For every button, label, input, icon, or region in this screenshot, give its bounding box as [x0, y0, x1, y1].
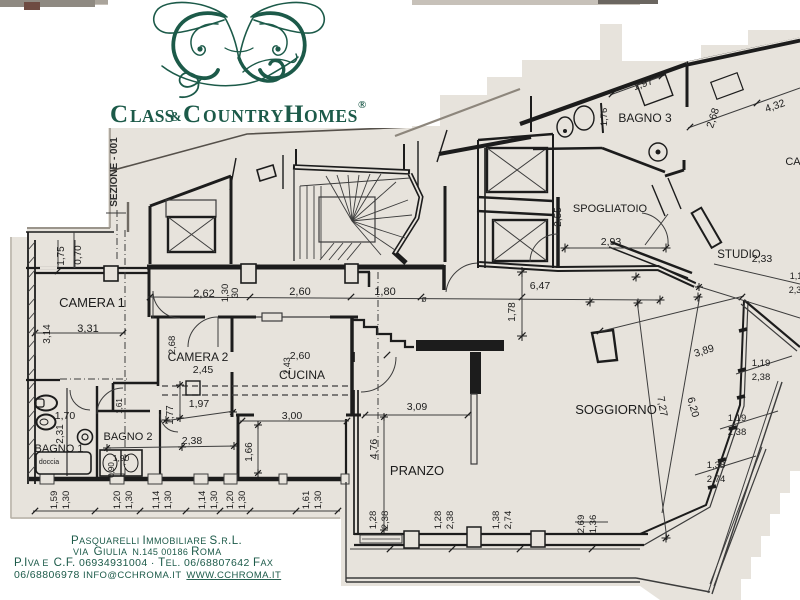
svg-text:2,33: 2,33	[752, 253, 773, 265]
svg-text:LASS: LASS	[130, 106, 175, 126]
svg-text:1,78: 1,78	[507, 302, 518, 322]
svg-text:®: ®	[358, 99, 366, 111]
svg-text:CAMERA 1: CAMERA 1	[59, 295, 125, 310]
svg-text:1,30: 1,30	[163, 491, 174, 510]
svg-text:1,30: 1,30	[237, 491, 248, 510]
svg-text:&: &	[170, 110, 182, 125]
svg-text:1,59: 1,59	[49, 491, 60, 510]
svg-text:1,61: 1,61	[115, 398, 124, 414]
svg-text:30: 30	[230, 288, 241, 299]
svg-text:1,75: 1,75	[56, 246, 67, 266]
svg-text:2,60: 2,60	[289, 286, 310, 298]
svg-text:1,14: 1,14	[197, 491, 208, 510]
svg-text:1,19: 1,19	[752, 358, 771, 369]
svg-text:2,93: 2,93	[601, 236, 622, 248]
svg-text:BAGNO 2: BAGNO 2	[104, 431, 153, 443]
svg-text:BAGNO 3: BAGNO 3	[618, 111, 672, 125]
svg-text:1,20: 1,20	[225, 491, 236, 510]
svg-text:2,38: 2,38	[445, 511, 456, 530]
svg-text:2,55: 2,55	[553, 207, 564, 227]
svg-text:1,97: 1,97	[189, 398, 210, 410]
svg-text:3,14: 3,14	[42, 324, 53, 344]
svg-text:1,14: 1,14	[151, 491, 162, 510]
svg-text:2,60: 2,60	[290, 350, 311, 362]
svg-text:C: C	[183, 101, 201, 128]
svg-text:1,90: 1,90	[113, 453, 130, 463]
svg-text:C: C	[110, 101, 128, 128]
svg-text:PRANZO: PRANZO	[390, 463, 444, 478]
svg-text:4,76: 4,76	[368, 439, 380, 460]
svg-text:CA: CA	[785, 156, 800, 168]
svg-text:1,28: 1,28	[368, 511, 379, 530]
svg-text:2,43: 2,43	[282, 357, 292, 375]
svg-text:3,31: 3,31	[77, 323, 98, 335]
svg-text:OMES: OMES	[304, 106, 358, 126]
svg-text:2,38: 2,38	[752, 372, 771, 383]
svg-text:2,38: 2,38	[728, 427, 747, 438]
svg-text:1,28: 1,28	[433, 511, 444, 530]
svg-text:1,30: 1,30	[61, 491, 72, 510]
svg-text:1,77: 1,77	[165, 405, 176, 425]
svg-text:ø: ø	[421, 294, 427, 304]
svg-text:SEZIONE - 001: SEZIONE - 001	[109, 137, 120, 207]
svg-text:0,90: 0,90	[107, 462, 116, 478]
svg-text:BAGNO 1: BAGNO 1	[35, 443, 84, 455]
svg-text:SPOGLIATOIO: SPOGLIATOIO	[573, 203, 648, 215]
svg-text:2,69: 2,69	[576, 515, 587, 534]
svg-text:3,09: 3,09	[407, 401, 428, 413]
svg-text:1,70: 1,70	[55, 410, 76, 422]
svg-text:2,68: 2,68	[167, 336, 178, 355]
svg-text:1,30: 1,30	[124, 491, 135, 510]
svg-text:3,00: 3,00	[282, 410, 303, 422]
svg-text:OUNTRY: OUNTRY	[203, 106, 284, 126]
svg-text:2,45: 2,45	[193, 364, 214, 376]
svg-text:1,1: 1,1	[790, 271, 800, 281]
svg-text:1,76: 1,76	[599, 108, 610, 127]
svg-text:0,70: 0,70	[73, 245, 84, 265]
svg-text:6,47: 6,47	[530, 280, 551, 292]
svg-text:1,30: 1,30	[209, 491, 220, 510]
svg-text:1,36: 1,36	[588, 515, 599, 534]
svg-text:1,61: 1,61	[301, 491, 312, 510]
svg-text:2,74: 2,74	[707, 474, 726, 485]
svg-text:1,30: 1,30	[313, 491, 324, 510]
svg-text:1,19: 1,19	[728, 413, 747, 424]
svg-text:1,20: 1,20	[112, 491, 123, 510]
svg-text:doccia: doccia	[39, 459, 59, 466]
svg-text:1,38: 1,38	[491, 511, 502, 530]
svg-text:H: H	[284, 101, 304, 128]
svg-text:1,80: 1,80	[374, 286, 395, 298]
svg-text:1,38: 1,38	[707, 460, 726, 471]
svg-text:2,38: 2,38	[380, 511, 391, 530]
svg-text:2,38: 2,38	[182, 435, 203, 447]
svg-text:2,62: 2,62	[193, 288, 214, 300]
svg-text:2,74: 2,74	[503, 511, 514, 530]
svg-text:1,66: 1,66	[244, 442, 255, 462]
svg-text:2,3: 2,3	[789, 285, 800, 295]
svg-text:SOGGIORNO: SOGGIORNO	[575, 402, 657, 417]
svg-text:2,31: 2,31	[55, 424, 66, 444]
